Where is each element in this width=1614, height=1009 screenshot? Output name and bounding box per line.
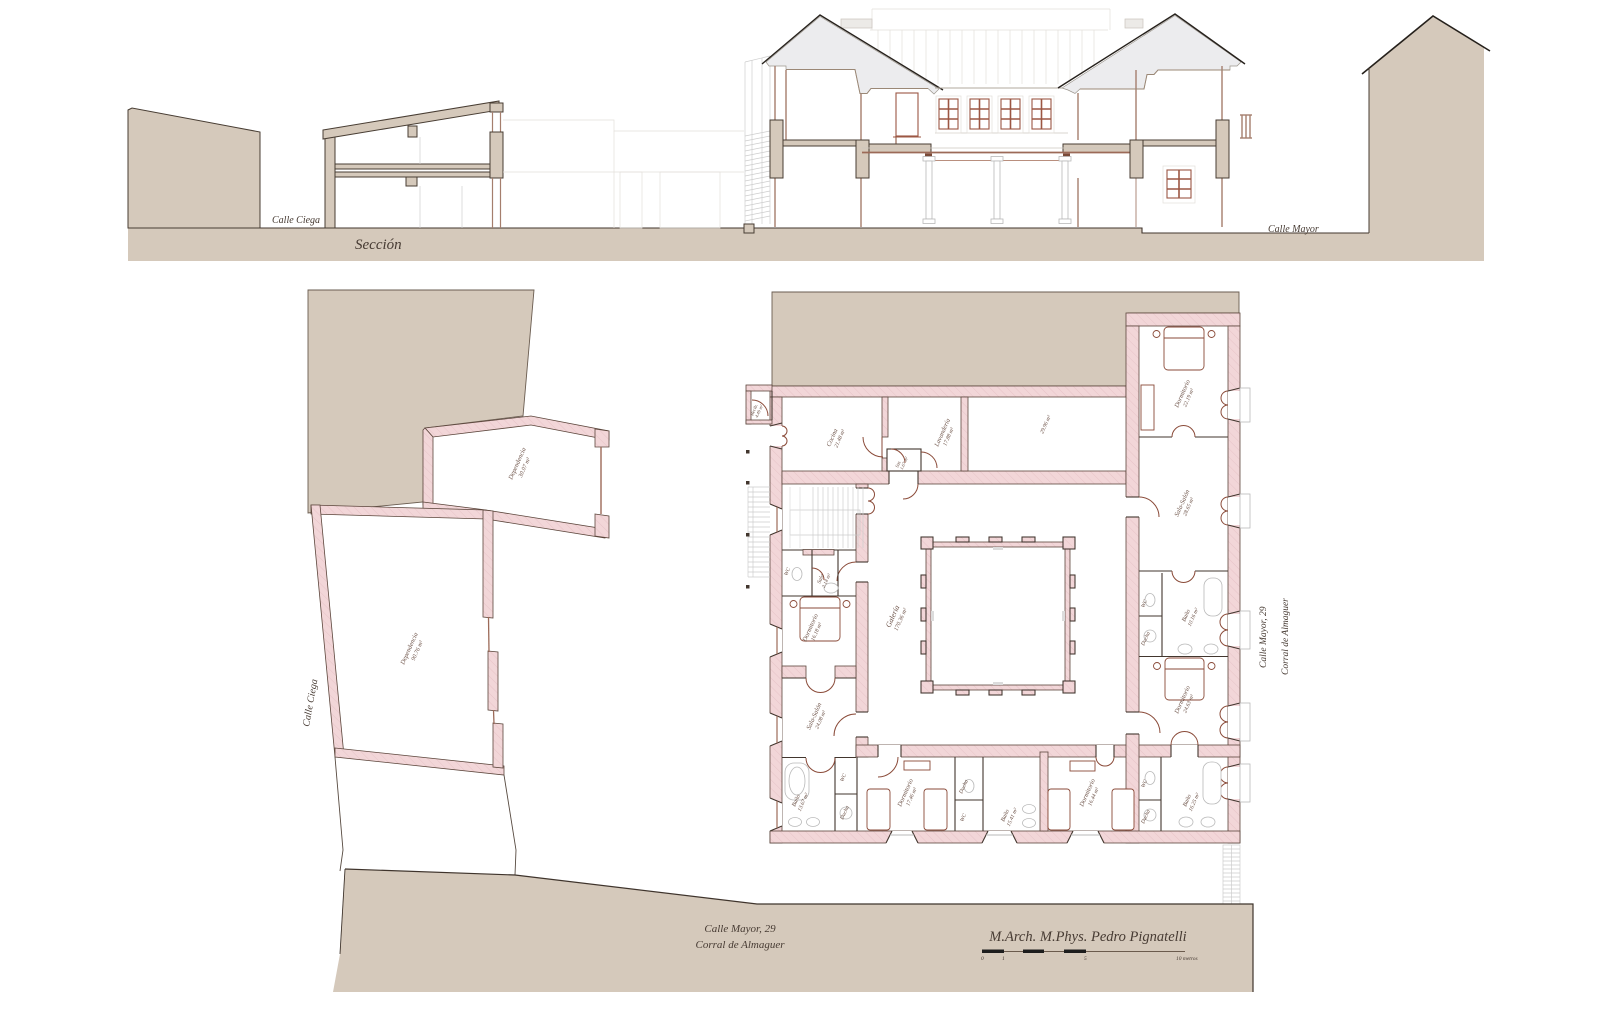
svg-text:WC: WC bbox=[839, 773, 848, 783]
svg-text:Calle Ciega: Calle Ciega bbox=[301, 678, 320, 727]
svg-text:Calle Mayor: Calle Mayor bbox=[1268, 224, 1319, 235]
svg-text:Calle Mayor, 29: Calle Mayor, 29 bbox=[704, 923, 776, 935]
svg-text:WC: WC bbox=[783, 567, 792, 577]
svg-text:WC: WC bbox=[959, 813, 968, 823]
svg-text:Corral de Almaguer: Corral de Almaguer bbox=[1281, 598, 1291, 675]
svg-text:0: 0 bbox=[981, 956, 984, 962]
svg-text:1: 1 bbox=[1002, 956, 1005, 962]
svg-text:Calle Mayor, 29: Calle Mayor, 29 bbox=[1259, 606, 1269, 668]
svg-text:Corral de Almaguer: Corral de Almaguer bbox=[695, 939, 785, 951]
svg-text:10 metros: 10 metros bbox=[1176, 956, 1198, 962]
svg-text:Sección: Sección bbox=[355, 237, 402, 253]
svg-text:29.96 m²: 29.96 m² bbox=[1039, 414, 1053, 434]
svg-text:5: 5 bbox=[1084, 956, 1087, 962]
svg-text:M.Arch. M.Phys. Pedro Pignatel: M.Arch. M.Phys. Pedro Pignatelli bbox=[988, 929, 1186, 945]
svg-text:Calle Ciega: Calle Ciega bbox=[272, 215, 320, 226]
